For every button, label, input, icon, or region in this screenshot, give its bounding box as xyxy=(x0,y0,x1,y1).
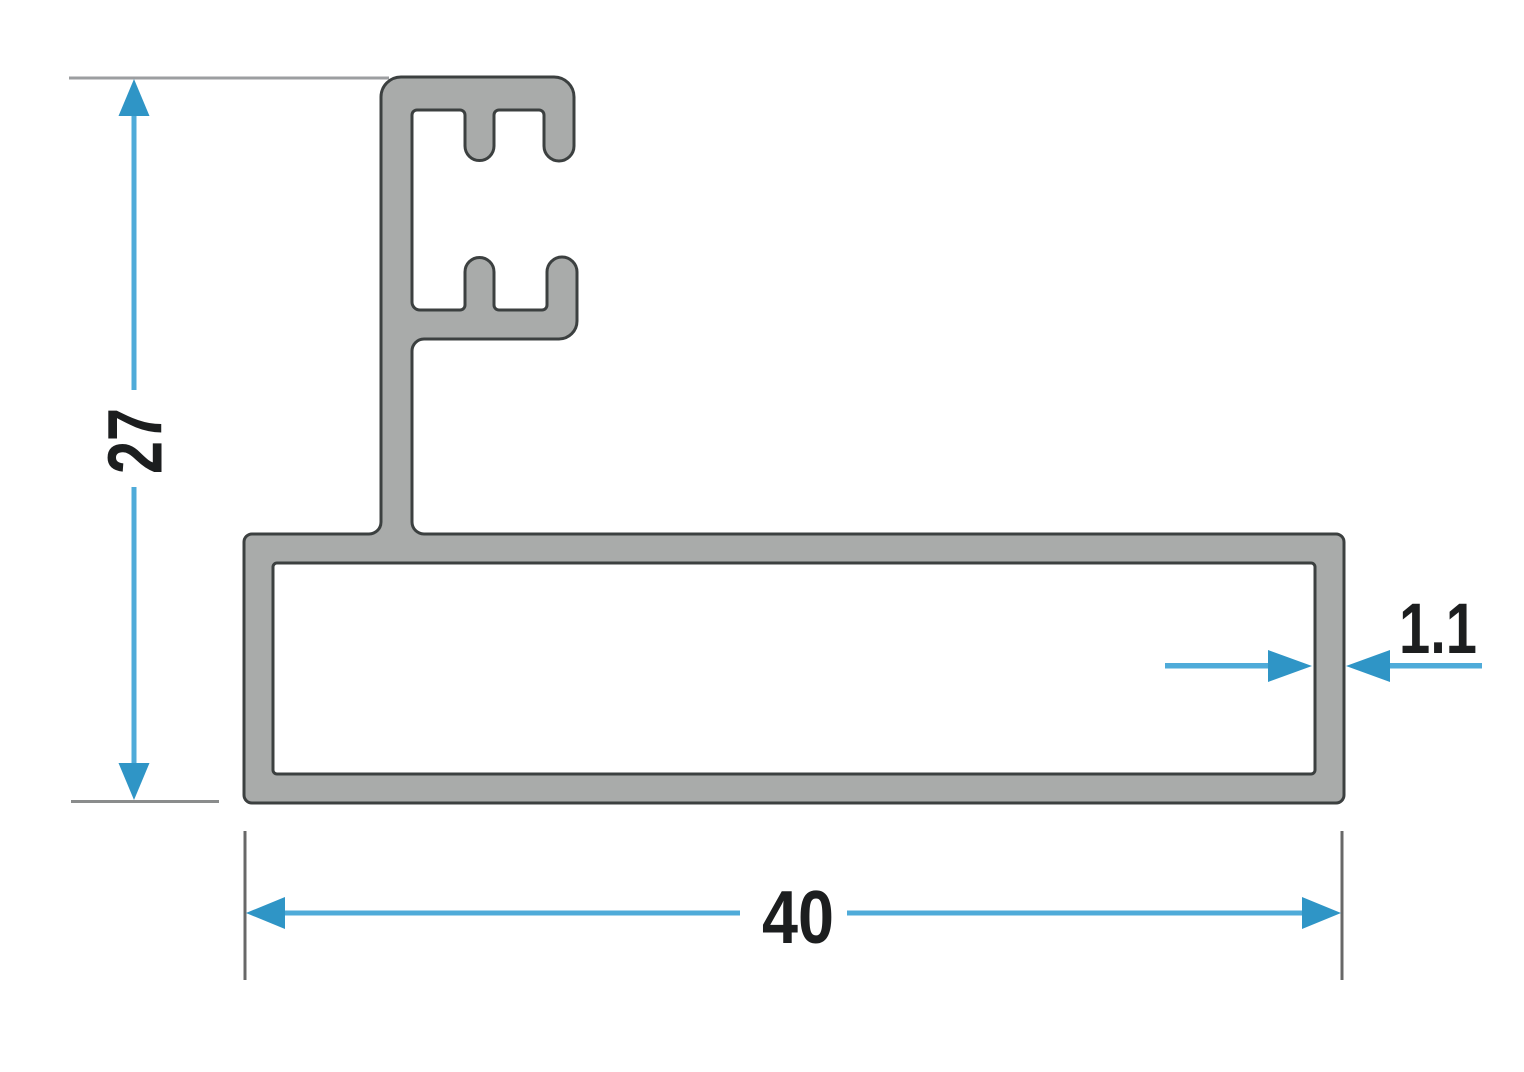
svg-text:1.1: 1.1 xyxy=(1399,590,1477,669)
svg-text:40: 40 xyxy=(762,875,834,959)
svg-text:27: 27 xyxy=(93,408,179,474)
